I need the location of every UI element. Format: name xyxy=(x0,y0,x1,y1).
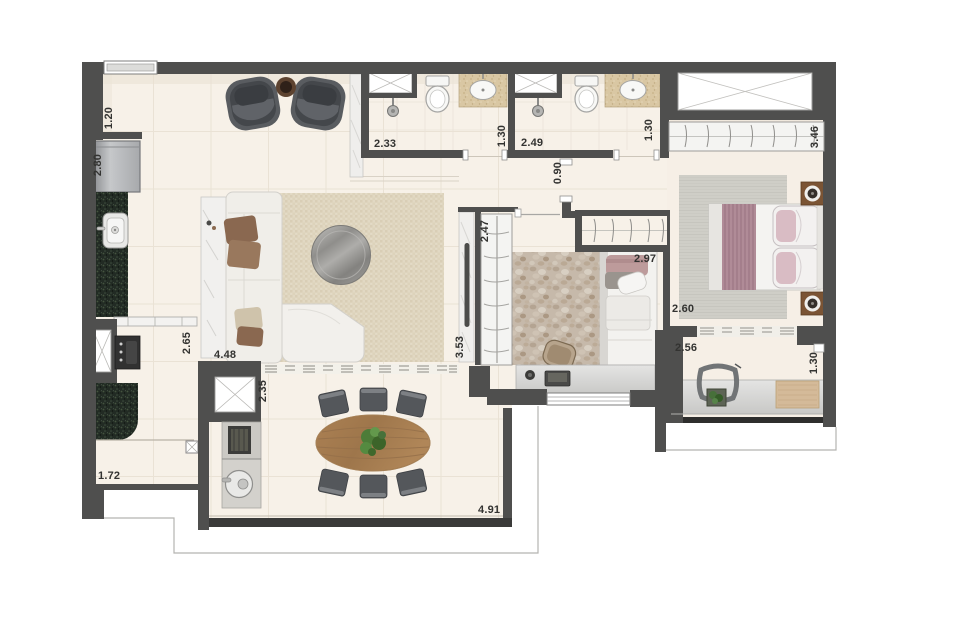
svg-text:2.56: 2.56 xyxy=(675,342,697,354)
svg-text:1.30: 1.30 xyxy=(643,119,655,141)
svg-text:2.47: 2.47 xyxy=(479,220,491,242)
svg-text:4.91: 4.91 xyxy=(478,504,500,516)
svg-text:1.72: 1.72 xyxy=(98,470,120,482)
svg-text:2.97: 2.97 xyxy=(634,253,656,265)
svg-text:2.80: 2.80 xyxy=(92,154,104,176)
svg-text:1.30: 1.30 xyxy=(496,125,508,147)
svg-text:2.35: 2.35 xyxy=(257,380,269,402)
svg-text:0.90: 0.90 xyxy=(552,162,564,184)
svg-text:2.33: 2.33 xyxy=(374,138,396,150)
svg-text:3.53: 3.53 xyxy=(454,336,466,358)
svg-text:1.30: 1.30 xyxy=(808,352,820,374)
svg-text:2.60: 2.60 xyxy=(672,303,694,315)
svg-text:2.49: 2.49 xyxy=(521,137,543,149)
svg-text:3.46: 3.46 xyxy=(809,126,821,148)
svg-text:1.20: 1.20 xyxy=(103,107,115,129)
svg-text:4.48: 4.48 xyxy=(214,349,236,361)
svg-text:2.65: 2.65 xyxy=(181,332,193,354)
